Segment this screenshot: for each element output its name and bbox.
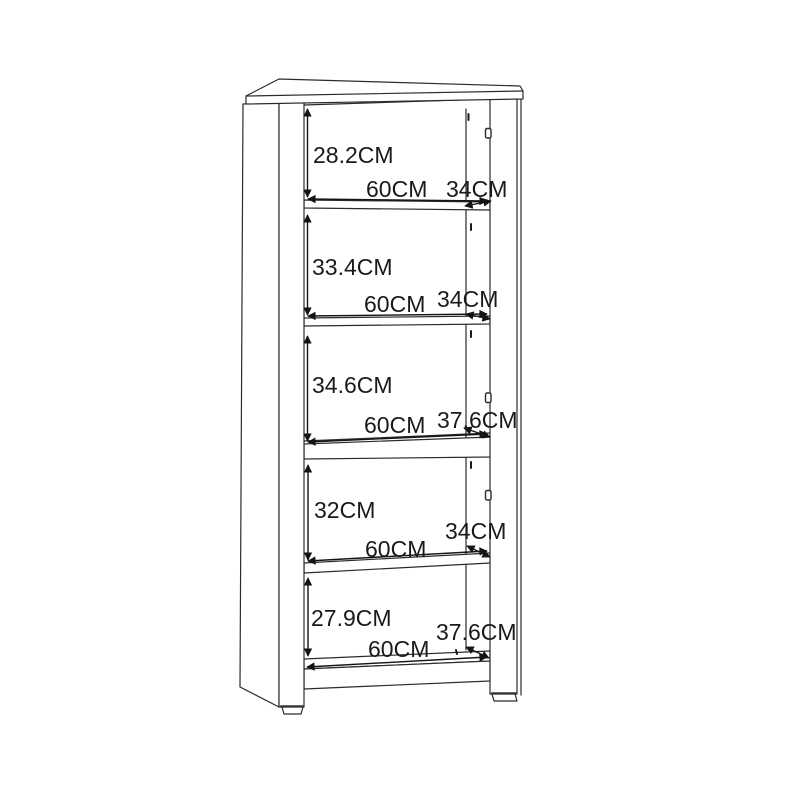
height-label-compartment-1: 28.2CM <box>313 142 394 168</box>
left-side-panel <box>240 102 279 707</box>
width-label-compartment-4: 60CM <box>365 536 426 562</box>
depth-label-compartment-2: 34CM <box>437 286 498 312</box>
left-foot-pad <box>282 707 303 714</box>
height-label-compartment-4: 32CM <box>314 497 375 523</box>
right-foot-pad <box>492 694 517 701</box>
bookcase-line-drawing: 28.2CM 60CM 34CM 33.4CM 60CM 34CM 34.6CM… <box>0 0 787 787</box>
shelf-2 <box>304 316 490 326</box>
depth-label-compartment-1: 34CM <box>446 176 507 202</box>
width-label-compartment-2: 60CM <box>364 291 425 317</box>
depth-label-compartment-4: 34CM <box>445 518 506 544</box>
depth-label-compartment-3: 37.6CM <box>437 407 518 433</box>
left-leg <box>279 101 304 707</box>
height-label-compartment-2: 33.4CM <box>312 254 393 280</box>
fitting-plate-1 <box>486 129 492 139</box>
fitting-plate-3 <box>486 491 492 501</box>
bookcase-dimension-diagram-page: 28.2CM 60CM 34CM 33.4CM 60CM 34CM 34.6CM… <box>0 0 787 787</box>
width-label-compartment-1: 60CM <box>366 176 427 202</box>
height-label-compartment-3: 34.6CM <box>312 372 393 398</box>
width-label-compartment-3: 60CM <box>364 412 425 438</box>
depth-label-compartment-5: 37.6CM <box>436 619 517 645</box>
width-label-compartment-5: 60CM <box>368 636 429 662</box>
shelf-pin-5 <box>456 650 457 654</box>
height-label-compartment-5: 27.9CM <box>311 605 392 631</box>
fitting-plate-2 <box>486 393 492 403</box>
